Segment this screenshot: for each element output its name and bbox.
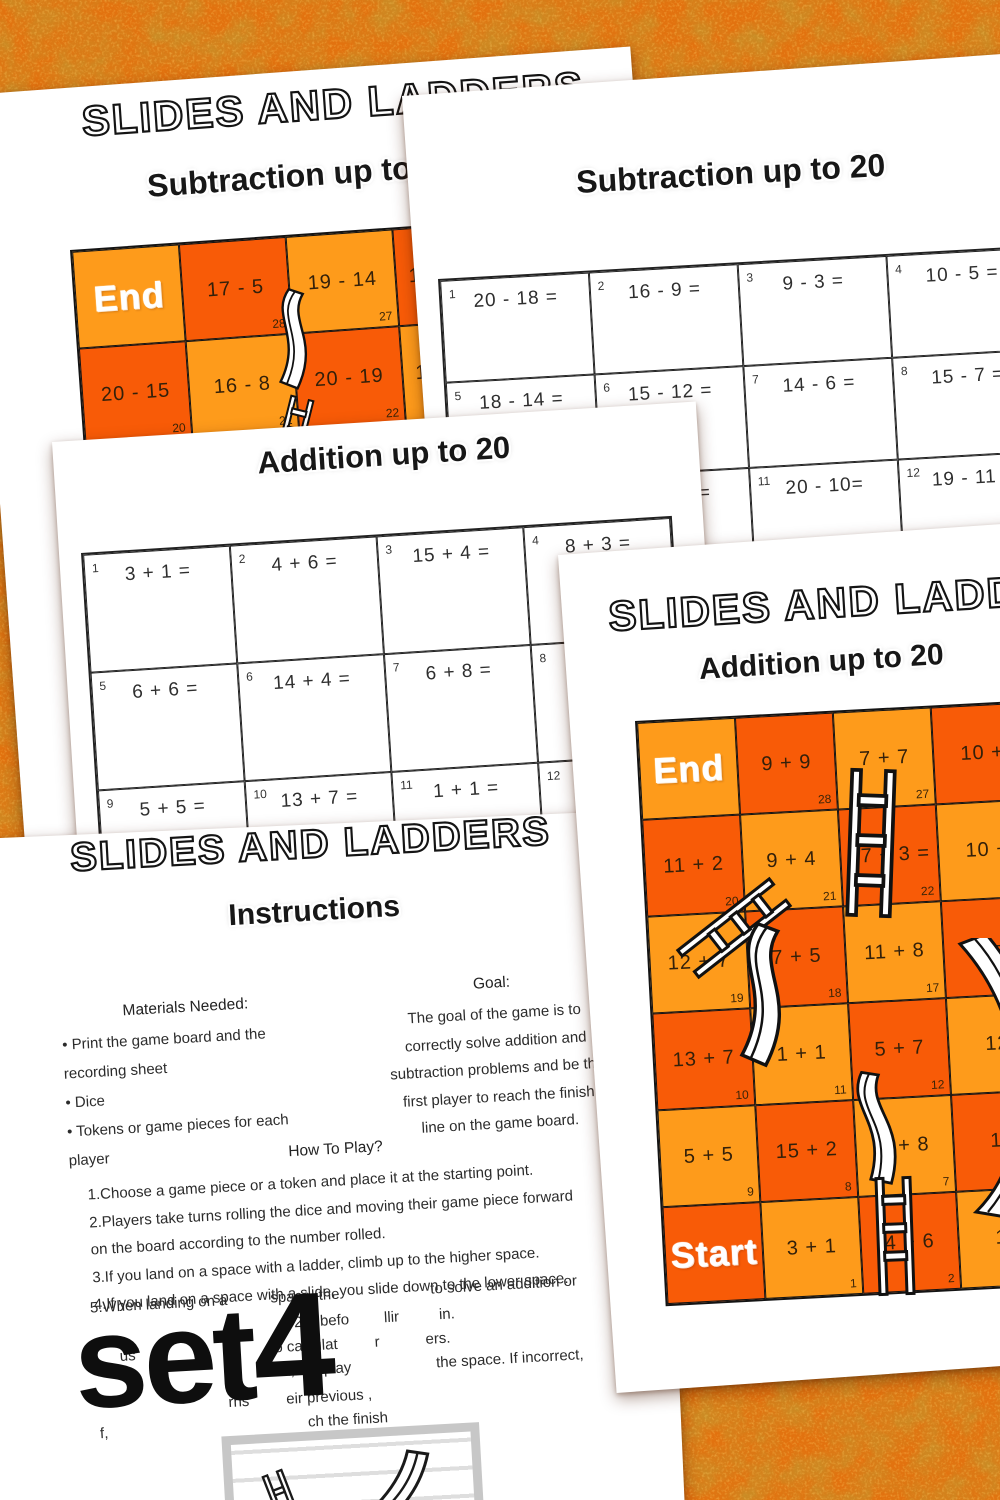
problem-number: 4 <box>532 533 540 547</box>
board-preview-graphic <box>221 1422 485 1500</box>
problem-number: 5 <box>99 679 107 693</box>
cell-problem: 9 + 9 <box>761 751 812 777</box>
sheet-cell: 714 - 6 = <box>743 358 897 468</box>
board-cell: 10 + <box>936 799 1000 901</box>
slide-icon <box>930 938 1000 1218</box>
problem-number: 8 <box>900 364 907 378</box>
cell-number: 1 <box>850 1276 857 1290</box>
problem-number: 8 <box>539 651 547 665</box>
cell-number: 9 <box>747 1184 754 1198</box>
problem-number: 2 <box>597 279 604 293</box>
ladder-icon <box>251 1464 317 1500</box>
cell-problem: 3 + 1 <box>786 1235 837 1261</box>
cell-number: 28 <box>818 792 832 807</box>
cell-problem: 5 + 7 <box>874 1036 925 1062</box>
problem-number: 5 <box>454 389 461 403</box>
text-fragment: the space. If incorrect, <box>436 1346 584 1371</box>
cell-number: 2 <box>948 1271 955 1285</box>
sheet-cell: 76 + 8 = <box>384 645 538 772</box>
sheet-cell: 815 - 7 = <box>892 349 1000 459</box>
cell-problem: 15 + 2 <box>775 1138 838 1164</box>
problem-text: 3 + 1 = <box>124 560 197 669</box>
problem-text: 14 - 6 = <box>782 372 860 465</box>
cell-number: 10 <box>735 1088 749 1103</box>
problem-text: 10 - 5 = <box>925 262 1000 355</box>
problem-text: 15 - 7 = <box>931 364 1000 457</box>
problem-number: 9 <box>106 796 114 810</box>
board-cell: 20 - 1520 <box>79 341 193 445</box>
cell-problem: 20 - 15 <box>100 379 171 407</box>
cell-number: 21 <box>823 889 837 904</box>
cell-problem: End <box>92 273 166 320</box>
board-cell: 9 + 928 <box>735 713 838 815</box>
slide-icon <box>349 1447 443 1500</box>
sheet-cell: 120 - 18 = <box>440 273 594 383</box>
text-fragment: llir <box>384 1308 400 1326</box>
goal-text: The goal of the game is tocorrectly solv… <box>369 994 626 1145</box>
problem-number: 11 <box>400 778 413 793</box>
text-fragment: r <box>374 1334 380 1351</box>
sheet-cell: 39 - 3 = <box>738 256 892 366</box>
ladder-icon <box>843 767 898 919</box>
cell-problem: 11 + 2 <box>663 853 725 879</box>
problem-number: 1 <box>92 561 100 575</box>
problem-text: 16 - 9 = <box>628 278 706 371</box>
problem-number: 12 <box>906 465 920 480</box>
problem-number: 2 <box>238 552 246 566</box>
cell-number: 22 <box>385 405 399 420</box>
sheet-cell: 24 + 6 = <box>230 536 384 663</box>
goal-heading: Goal: <box>371 968 612 999</box>
set-number: 4 <box>248 1261 335 1430</box>
board-cell: End <box>637 718 740 820</box>
board-cell: 3 + 11 <box>760 1197 863 1299</box>
cell-problem: 5 + 5 <box>683 1143 734 1169</box>
problem-text: 6 + 6 = <box>132 678 205 787</box>
board-cell: 10 + <box>931 702 1000 804</box>
board-cell: End <box>72 244 186 348</box>
problem-text: 20 - 18 = <box>473 286 562 380</box>
slide-icon <box>245 284 333 396</box>
cell-problem: 15 <box>995 1226 1000 1250</box>
cell-number: 22 <box>921 884 935 899</box>
problem-text: 15 + 4 = <box>412 541 496 651</box>
cell-problem: 11 + 8 <box>864 939 926 965</box>
board-cell: 5 + 59 <box>657 1105 760 1207</box>
cell-problem: 10 + <box>965 838 1000 863</box>
slide-icon <box>829 1067 915 1192</box>
set-number-label: set 4 <box>70 1270 335 1432</box>
problem-number: 7 <box>392 660 400 674</box>
sheet-cell: 216 - 9 = <box>589 264 743 374</box>
collage-canvas: SLIDES AND LADDERS Subtraction up to 20 … <box>0 0 1000 1500</box>
text-fragment: in. <box>438 1305 455 1323</box>
instructions-title: SLIDES AND LADDERS <box>40 808 582 883</box>
sheet-cell: 56 + 6 = <box>91 663 245 790</box>
sheet-cell: 13 + 1 = <box>83 546 237 673</box>
problem-number: 6 <box>603 381 610 395</box>
instructions-subtitle: Instructions <box>44 879 585 943</box>
problem-number: 1 <box>448 287 455 301</box>
board-cell: Start <box>662 1202 765 1304</box>
set-word: set <box>70 1280 257 1437</box>
cell-problem: 9 + 4 <box>766 848 817 874</box>
cell-number: 27 <box>379 309 393 324</box>
problem-number: 3 <box>746 270 753 284</box>
board-cell: 11 + 220 <box>642 815 745 917</box>
problem-text: 14 + 4 = <box>273 668 357 778</box>
cell-number: 27 <box>916 787 930 802</box>
cell-problem: 10 + <box>960 741 1000 766</box>
cell-problem: Start <box>669 1230 758 1276</box>
ladder-icon <box>870 1175 920 1297</box>
problem-number: 3 <box>385 542 393 556</box>
problem-number: 10 <box>253 787 267 802</box>
cell-number: 18 <box>828 986 842 1001</box>
problem-number: 6 <box>246 669 254 683</box>
problem-text: 4 + 6 = <box>271 551 344 660</box>
sheet-cell: 614 + 4 = <box>237 654 391 781</box>
materials-heading: Materials Needed: <box>75 993 296 1023</box>
cell-problem: End <box>652 746 725 792</box>
problem-number: 7 <box>752 372 759 386</box>
problem-number: 4 <box>895 262 902 276</box>
problem-number: 11 <box>757 474 770 489</box>
text-fragment: ers. <box>425 1330 451 1348</box>
problem-number: 12 <box>546 768 560 783</box>
problem-text: 9 - 3 = <box>782 270 848 362</box>
sheet-cell: 410 - 5 = <box>886 248 1000 358</box>
sheet-cell: 315 + 4 = <box>377 527 531 654</box>
problem-text: 6 + 8 = <box>425 659 498 768</box>
